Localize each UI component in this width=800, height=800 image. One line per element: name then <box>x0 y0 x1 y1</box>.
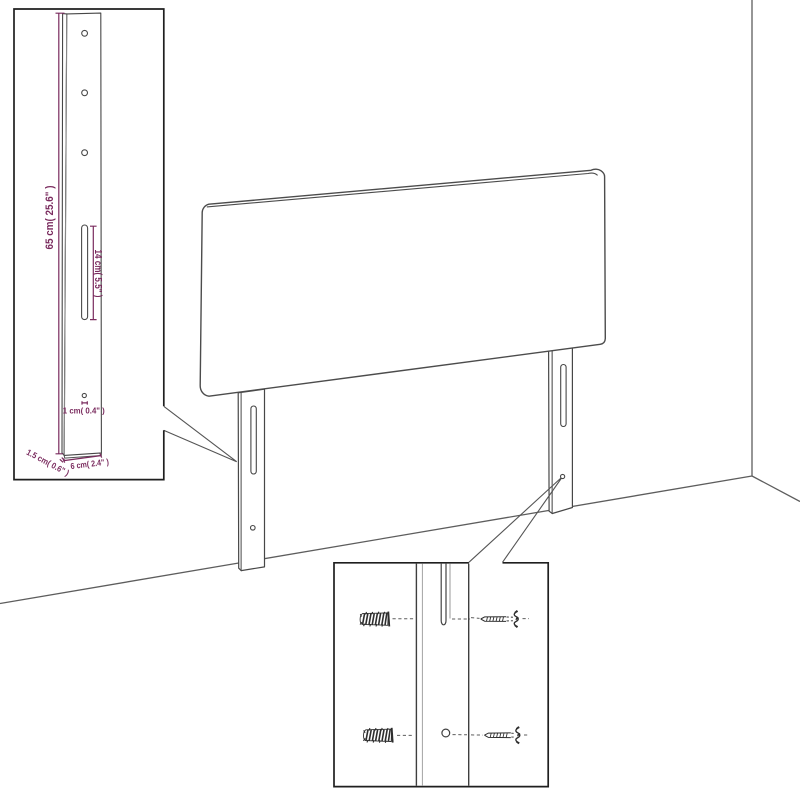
svg-text:1 cm( 0.4" ): 1 cm( 0.4" ) <box>63 406 105 416</box>
svg-text:14 cm( 5.5" ): 14 cm( 5.5" ) <box>92 250 104 298</box>
svg-text:65 cm( 25.6" ): 65 cm( 25.6" ) <box>44 185 56 249</box>
